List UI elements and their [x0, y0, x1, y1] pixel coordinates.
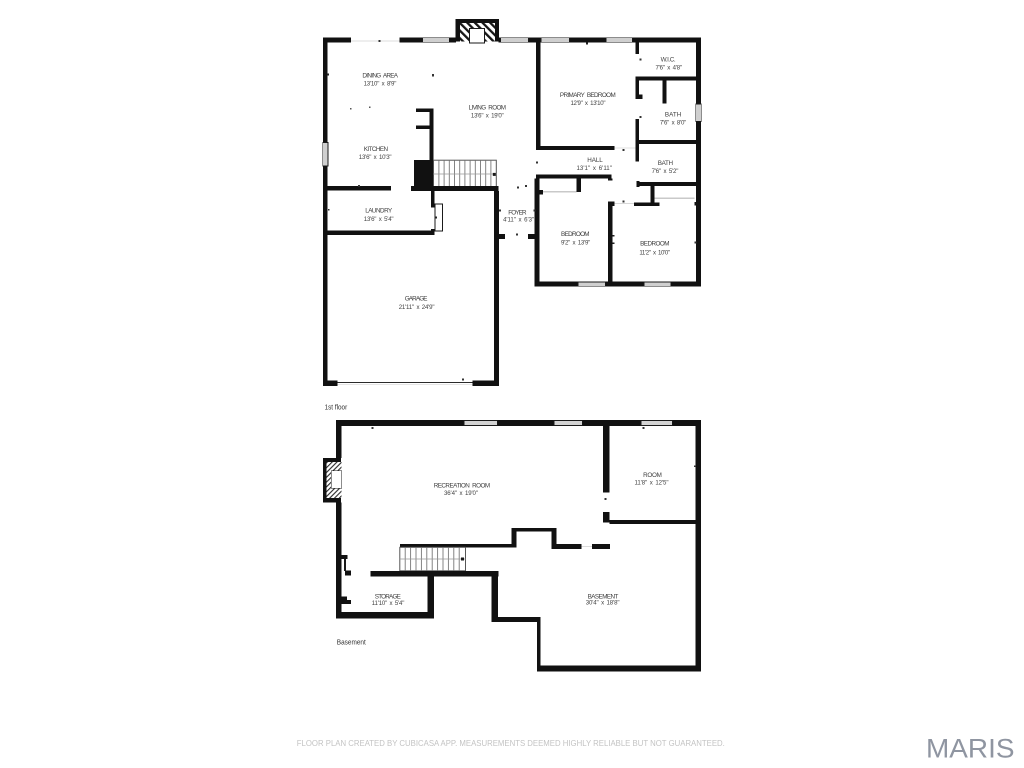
svg-text:GARAGE: GARAGE — [405, 296, 428, 303]
svg-text:13'6" x 5'4": 13'6" x 5'4" — [364, 216, 394, 223]
svg-text:Basement: Basement — [337, 639, 366, 646]
svg-text:7'6" x 4'8": 7'6" x 4'8" — [656, 64, 683, 71]
svg-text:36'4" x 19'0": 36'4" x 19'0" — [444, 490, 478, 497]
svg-text:4'11" x 6'3": 4'11" x 6'3" — [503, 217, 534, 224]
svg-text:21'11" x 24'9": 21'11" x 24'9" — [399, 304, 435, 311]
svg-text:12'9" x 13'10": 12'9" x 13'10" — [570, 100, 605, 107]
svg-text:RECREATION ROOM: RECREATION ROOM — [434, 482, 490, 489]
svg-text:30'4" x 18'8": 30'4" x 18'8" — [586, 600, 620, 607]
svg-text:1st floor: 1st floor — [325, 405, 348, 412]
svg-text:11'2" x 10'0": 11'2" x 10'0" — [639, 250, 670, 257]
svg-text:11'10" x 5'4": 11'10" x 5'4" — [372, 600, 405, 607]
svg-text:ROOM: ROOM — [643, 472, 662, 479]
svg-text:BATH: BATH — [658, 160, 674, 167]
svg-text:7'6" x 8'0": 7'6" x 8'0" — [660, 119, 686, 126]
svg-text:13'6" x 19'0": 13'6" x 19'0" — [471, 113, 504, 120]
svg-text:13'10" x 8'9": 13'10" x 8'9" — [364, 81, 397, 88]
svg-text:BEDROOM: BEDROOM — [640, 240, 669, 247]
svg-text:LIVING ROOM: LIVING ROOM — [469, 104, 507, 111]
svg-text:BEDROOM: BEDROOM — [561, 231, 590, 238]
svg-text:DINING AREA: DINING AREA — [362, 72, 398, 79]
svg-text:MARIS: MARIS — [926, 734, 1015, 764]
svg-text:FLOOR PLAN CREATED BY CUBICASA: FLOOR PLAN CREATED BY CUBICASA APP. MEAS… — [297, 739, 725, 748]
svg-text:9'2" x 13'9": 9'2" x 13'9" — [561, 239, 590, 246]
svg-text:11'8" x 12'5": 11'8" x 12'5" — [635, 479, 669, 486]
svg-text:13'6" x 10'3": 13'6" x 10'3" — [359, 154, 392, 161]
svg-text:7'6" x 5'2": 7'6" x 5'2" — [652, 168, 679, 175]
svg-text:13'1" x 6'11": 13'1" x 6'11" — [577, 165, 612, 172]
svg-text:PRIMARY BEDROOM: PRIMARY BEDROOM — [560, 92, 616, 99]
svg-text:LAUNDRY: LAUNDRY — [365, 208, 393, 215]
svg-text:FOYER: FOYER — [508, 209, 527, 216]
svg-text:BATH: BATH — [665, 111, 682, 118]
svg-text:HALL: HALL — [587, 157, 603, 164]
svg-text:KITCHEN: KITCHEN — [364, 146, 389, 153]
svg-text:W.I.C.: W.I.C. — [661, 56, 676, 63]
